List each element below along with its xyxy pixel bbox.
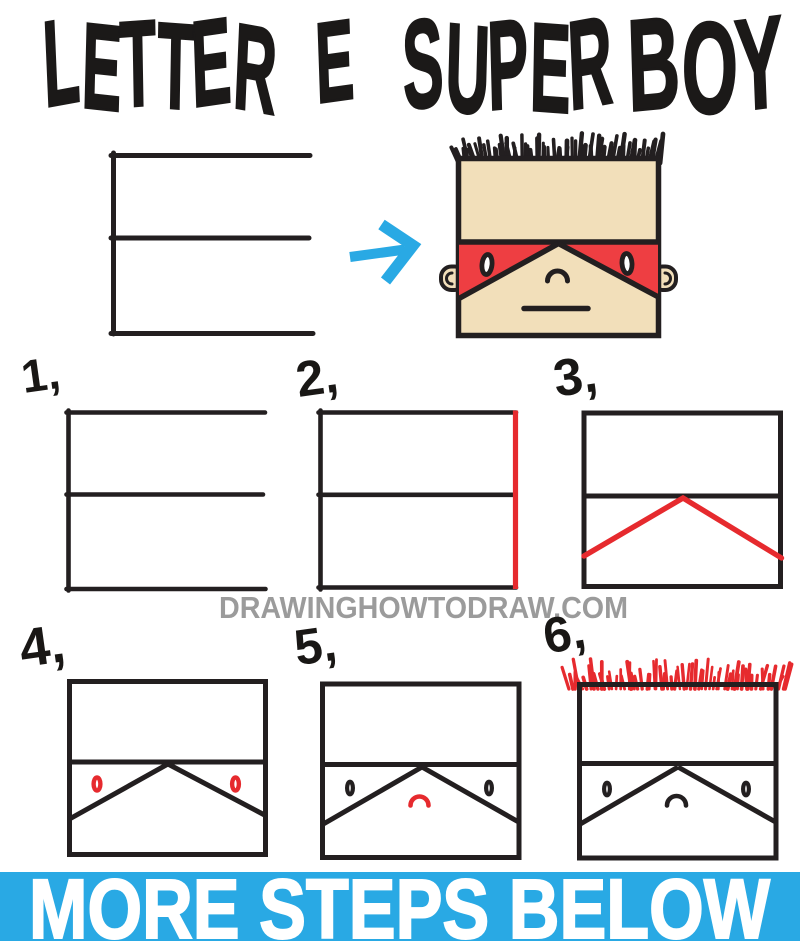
svg-text:MORE STEPS BELOW: MORE STEPS BELOW [29,862,771,941]
svg-text:2,: 2, [292,347,341,408]
svg-text:SUPER: SUPER [396,0,616,139]
svg-text:LETTER: LETTER [35,0,284,137]
svg-text:4,: 4, [16,613,69,679]
svg-text:5,: 5, [291,615,340,676]
svg-text:BOY: BOY [623,0,787,141]
svg-text:3,: 3, [550,345,601,408]
svg-text:1,: 1, [18,346,63,403]
